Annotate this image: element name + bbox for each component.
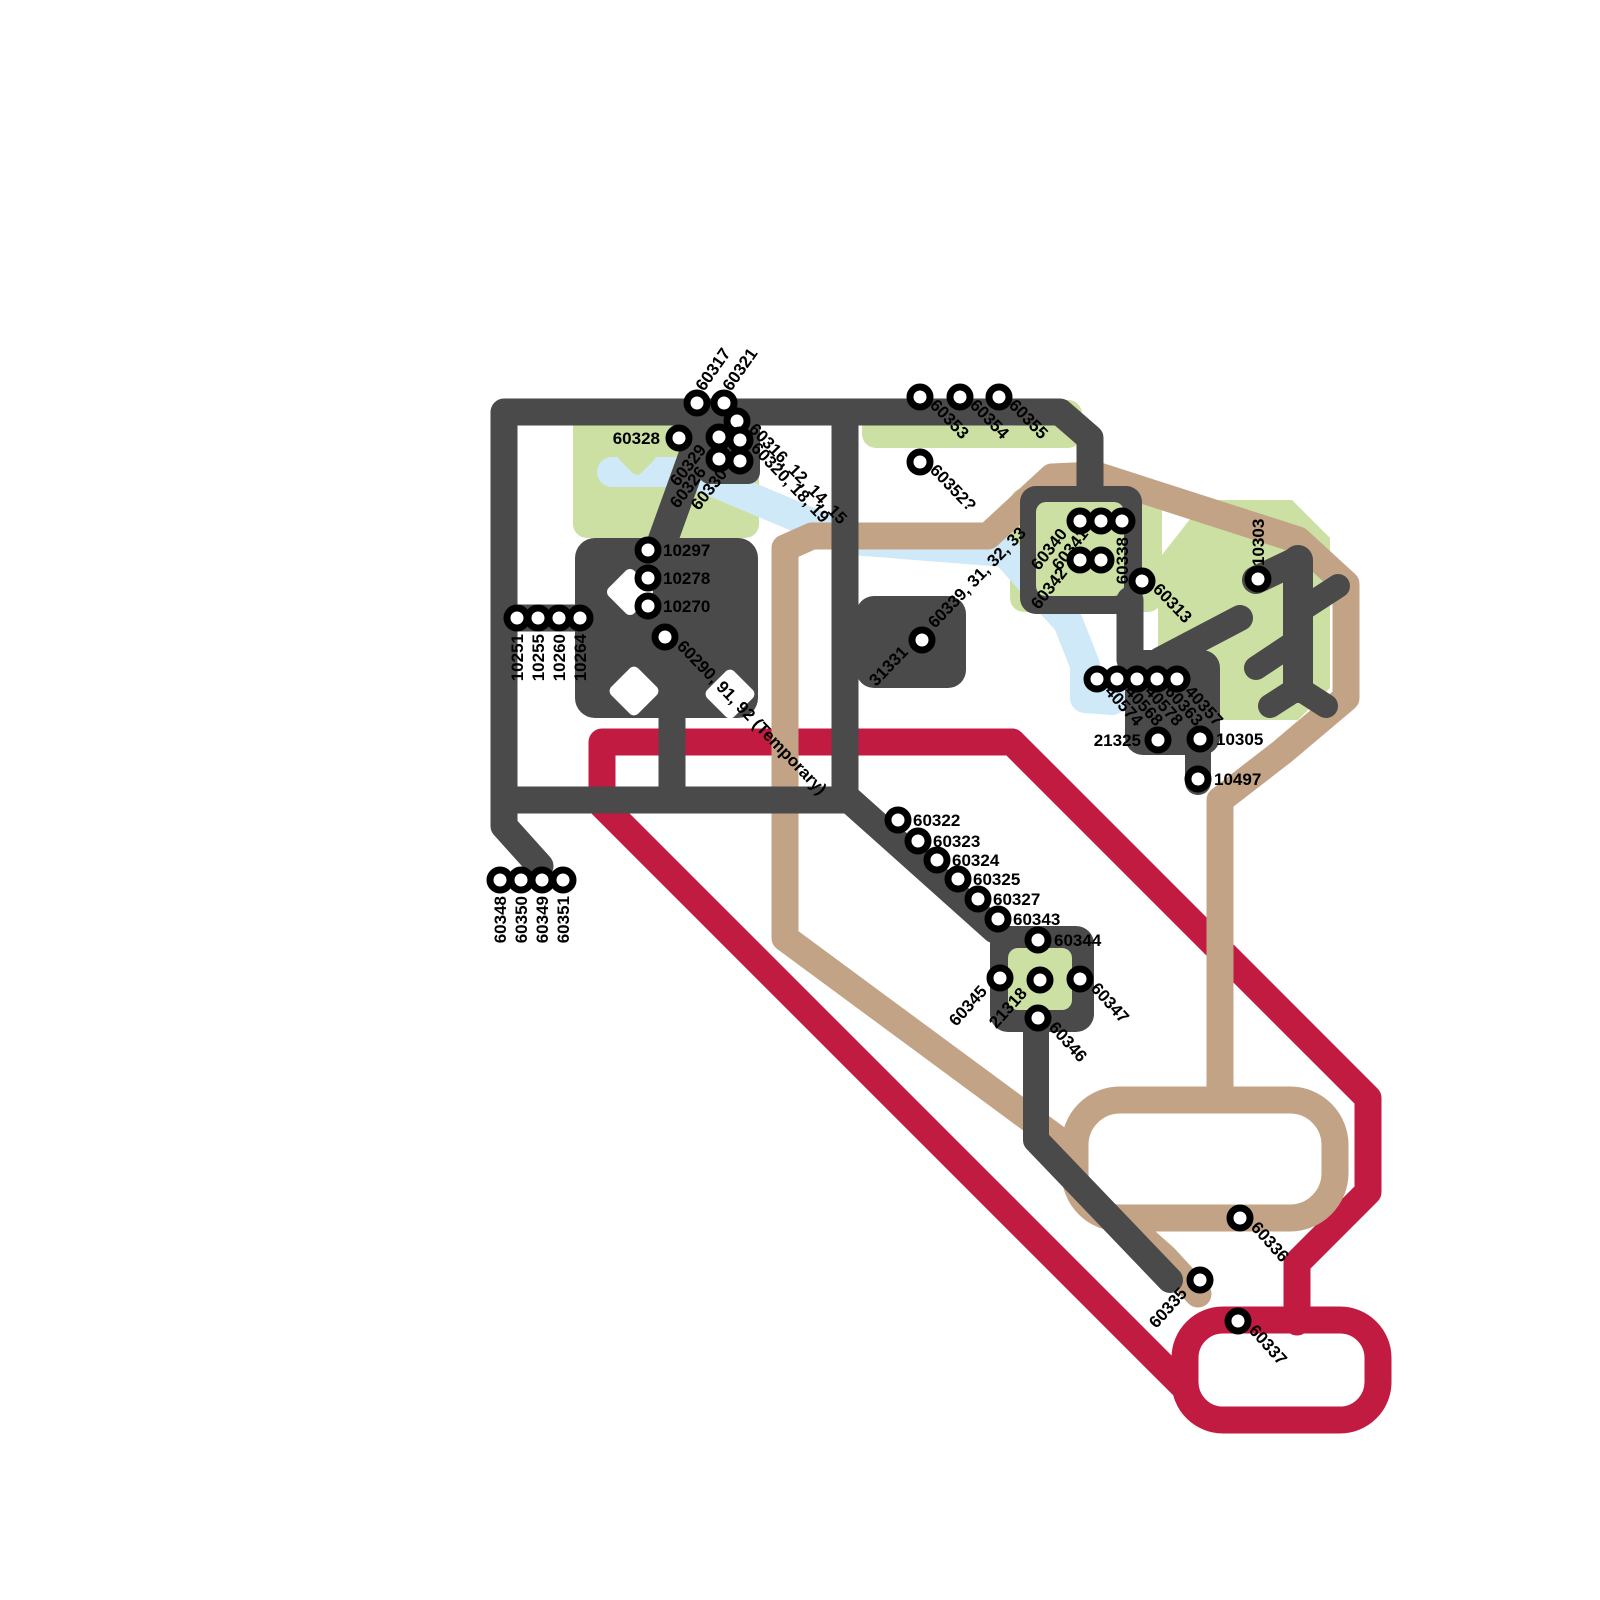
station-label-10497: 10497 [1214,770,1261,789]
station-label-60322: 60322 [913,811,960,830]
station-10270[interactable] [638,596,658,616]
station-label-60345: 60345 [945,982,991,1030]
station-label-60343: 60343 [1013,910,1060,929]
station-label-10270: 10270 [663,597,710,616]
station-10255[interactable] [528,608,548,628]
station-60346[interactable] [1028,1008,1048,1028]
station-label-10260: 10260 [550,634,569,681]
station-60347[interactable] [1070,969,1090,989]
tan-oval-loop [1075,1100,1335,1218]
station-label-21325: 21325 [1094,731,1141,750]
station-label-60328: 60328 [613,429,660,448]
station-label-10264: 10264 [571,633,590,681]
station-60344[interactable] [1028,930,1048,950]
station-60328[interactable] [669,428,689,448]
station-label-60350: 60350 [512,896,531,943]
station-label-10303: 10303 [1249,519,1268,566]
station-label-60327: 60327 [993,890,1040,909]
station-60325[interactable] [948,869,968,889]
station-label-10278: 10278 [663,569,710,588]
station-10305[interactable] [1190,729,1210,749]
station-60350[interactable] [511,870,531,890]
station-label-60323: 60323 [933,832,980,851]
station-60317[interactable] [687,393,707,413]
station-10260[interactable] [549,608,569,628]
station-10497[interactable] [1188,769,1208,789]
station-label-60352: 60352? [926,461,980,516]
station-60290-91-92[interactable] [655,627,675,647]
station-60326[interactable] [709,449,729,469]
station-60342b[interactable] [1091,550,1111,570]
station-label-60348: 60348 [491,896,510,943]
station-10297[interactable] [638,540,658,560]
station-label-60344: 60344 [1054,931,1102,950]
station-60352[interactable] [910,452,930,472]
station-60353[interactable] [910,387,930,407]
station-label-60324: 60324 [952,851,1000,870]
station-60351[interactable] [553,870,573,890]
station-label-60338: 60338 [1113,537,1132,584]
station-60323[interactable] [908,831,928,851]
station-label-10297: 10297 [663,541,710,560]
station-60335[interactable] [1190,1270,1210,1290]
station-60329[interactable] [709,427,729,447]
station-60338[interactable] [1112,511,1132,531]
station-60348[interactable] [490,870,510,890]
station-60337[interactable] [1228,1311,1248,1331]
coaster-foot-2 [1298,688,1326,706]
station-label-10251: 10251 [508,634,527,681]
transit-style-map: 60317603216032860316, 12, 14, 1560320, 1… [0,0,1600,1600]
station-21318[interactable] [1030,970,1050,990]
station-60327[interactable] [968,889,988,909]
station-60341[interactable] [1091,511,1111,531]
station-label-60351: 60351 [554,896,573,943]
station-60355[interactable] [989,387,1009,407]
station-60313[interactable] [1132,571,1152,591]
map-canvas: 60317603216032860316, 12, 14, 1560320, 1… [0,0,1600,1600]
station-21325[interactable] [1148,730,1168,750]
station-label-60325: 60325 [973,870,1020,889]
station-10264[interactable] [570,608,590,628]
station-10278[interactable] [638,568,658,588]
station-60324[interactable] [927,850,947,870]
station-60349[interactable] [532,870,552,890]
station-31331[interactable] [912,630,932,650]
station-60354[interactable] [950,387,970,407]
station-label-10255: 10255 [529,634,548,681]
station-label-10305: 10305 [1216,730,1263,749]
station-60343[interactable] [988,909,1008,929]
station-10303[interactable] [1248,569,1268,589]
station-60322[interactable] [888,810,908,830]
station-60345[interactable] [990,968,1010,988]
red-terminal-loop [1185,1320,1378,1420]
station-10251[interactable] [507,608,527,628]
station-label-60349: 60349 [533,896,552,943]
station-60336[interactable] [1230,1208,1250,1228]
station-60330[interactable] [730,451,750,471]
